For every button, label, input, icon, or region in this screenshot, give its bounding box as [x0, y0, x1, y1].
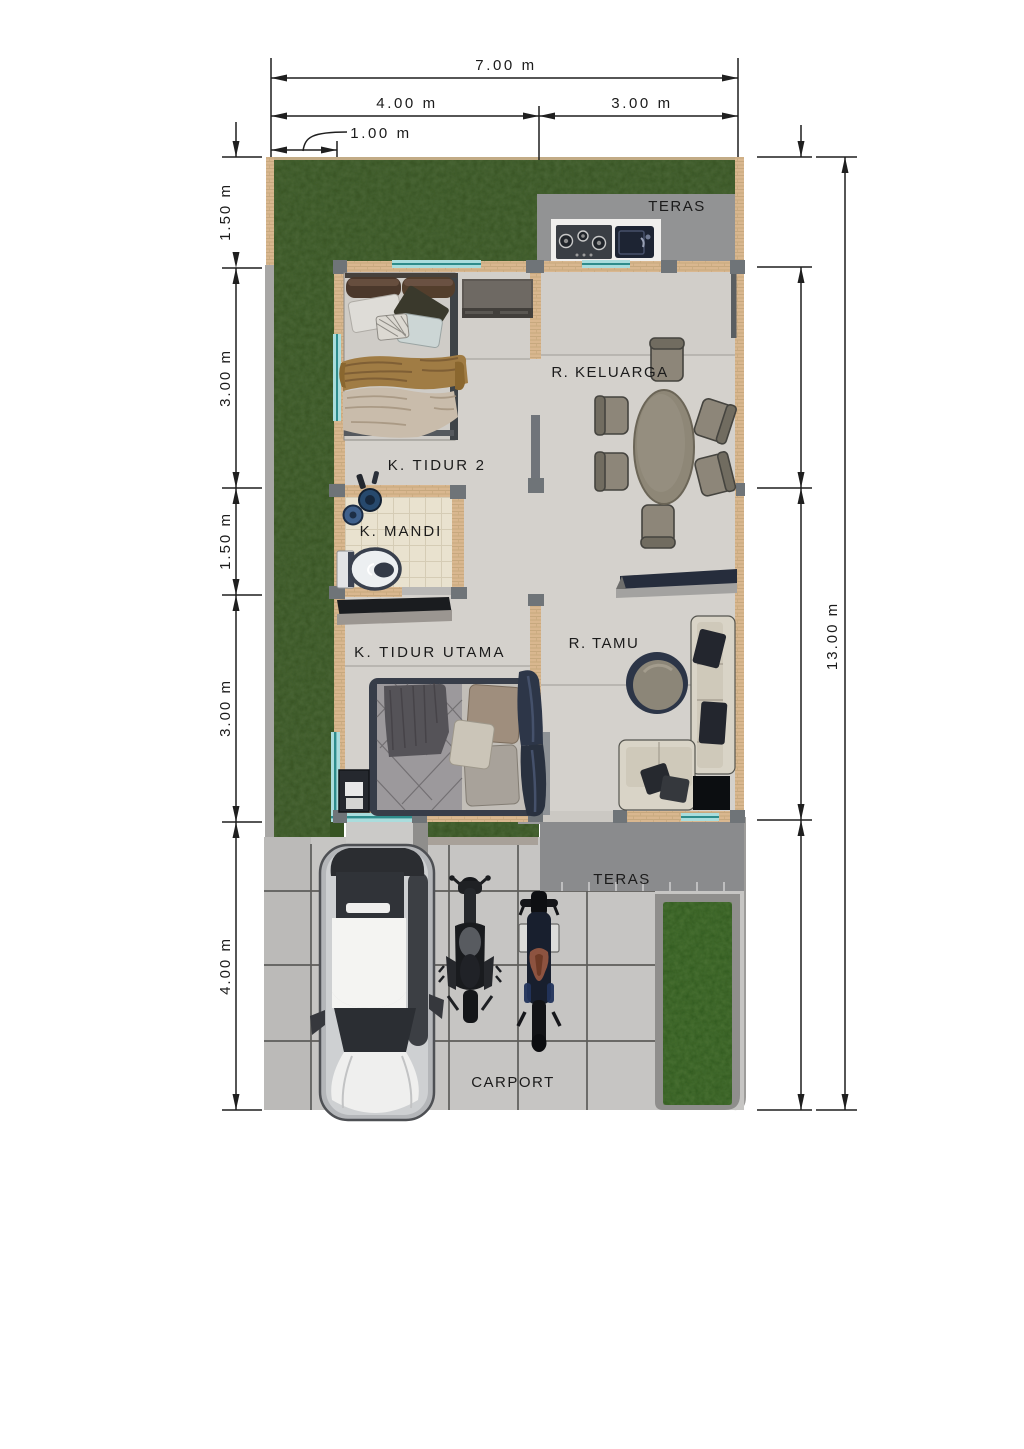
svg-text:1.50 m: 1.50 m [217, 183, 234, 241]
svg-text:4.00 m: 4.00 m [217, 937, 234, 995]
svg-text:13.00 m: 13.00 m [824, 602, 841, 670]
svg-text:TERAS: TERAS [648, 198, 706, 215]
svg-text:CARPORT: CARPORT [471, 1074, 555, 1091]
svg-text:3.00 m: 3.00 m [217, 679, 234, 737]
svg-text:3.00 m: 3.00 m [217, 349, 234, 407]
svg-text:1.50 m: 1.50 m [217, 512, 234, 570]
svg-text:1.00 m: 1.00 m [350, 125, 411, 142]
svg-text:3.00 m: 3.00 m [611, 95, 672, 112]
svg-text:R. TAMU: R. TAMU [569, 635, 640, 652]
svg-text:K. TIDUR 2: K. TIDUR 2 [388, 457, 486, 474]
svg-text:7.00 m: 7.00 m [475, 57, 536, 74]
svg-text:K. MANDI: K. MANDI [360, 523, 443, 540]
svg-text:R. KELUARGA: R. KELUARGA [551, 364, 668, 381]
svg-text:TERAS: TERAS [593, 871, 651, 888]
svg-text:K. TIDUR UTAMA: K. TIDUR UTAMA [354, 644, 506, 661]
svg-text:4.00 m: 4.00 m [376, 95, 437, 112]
